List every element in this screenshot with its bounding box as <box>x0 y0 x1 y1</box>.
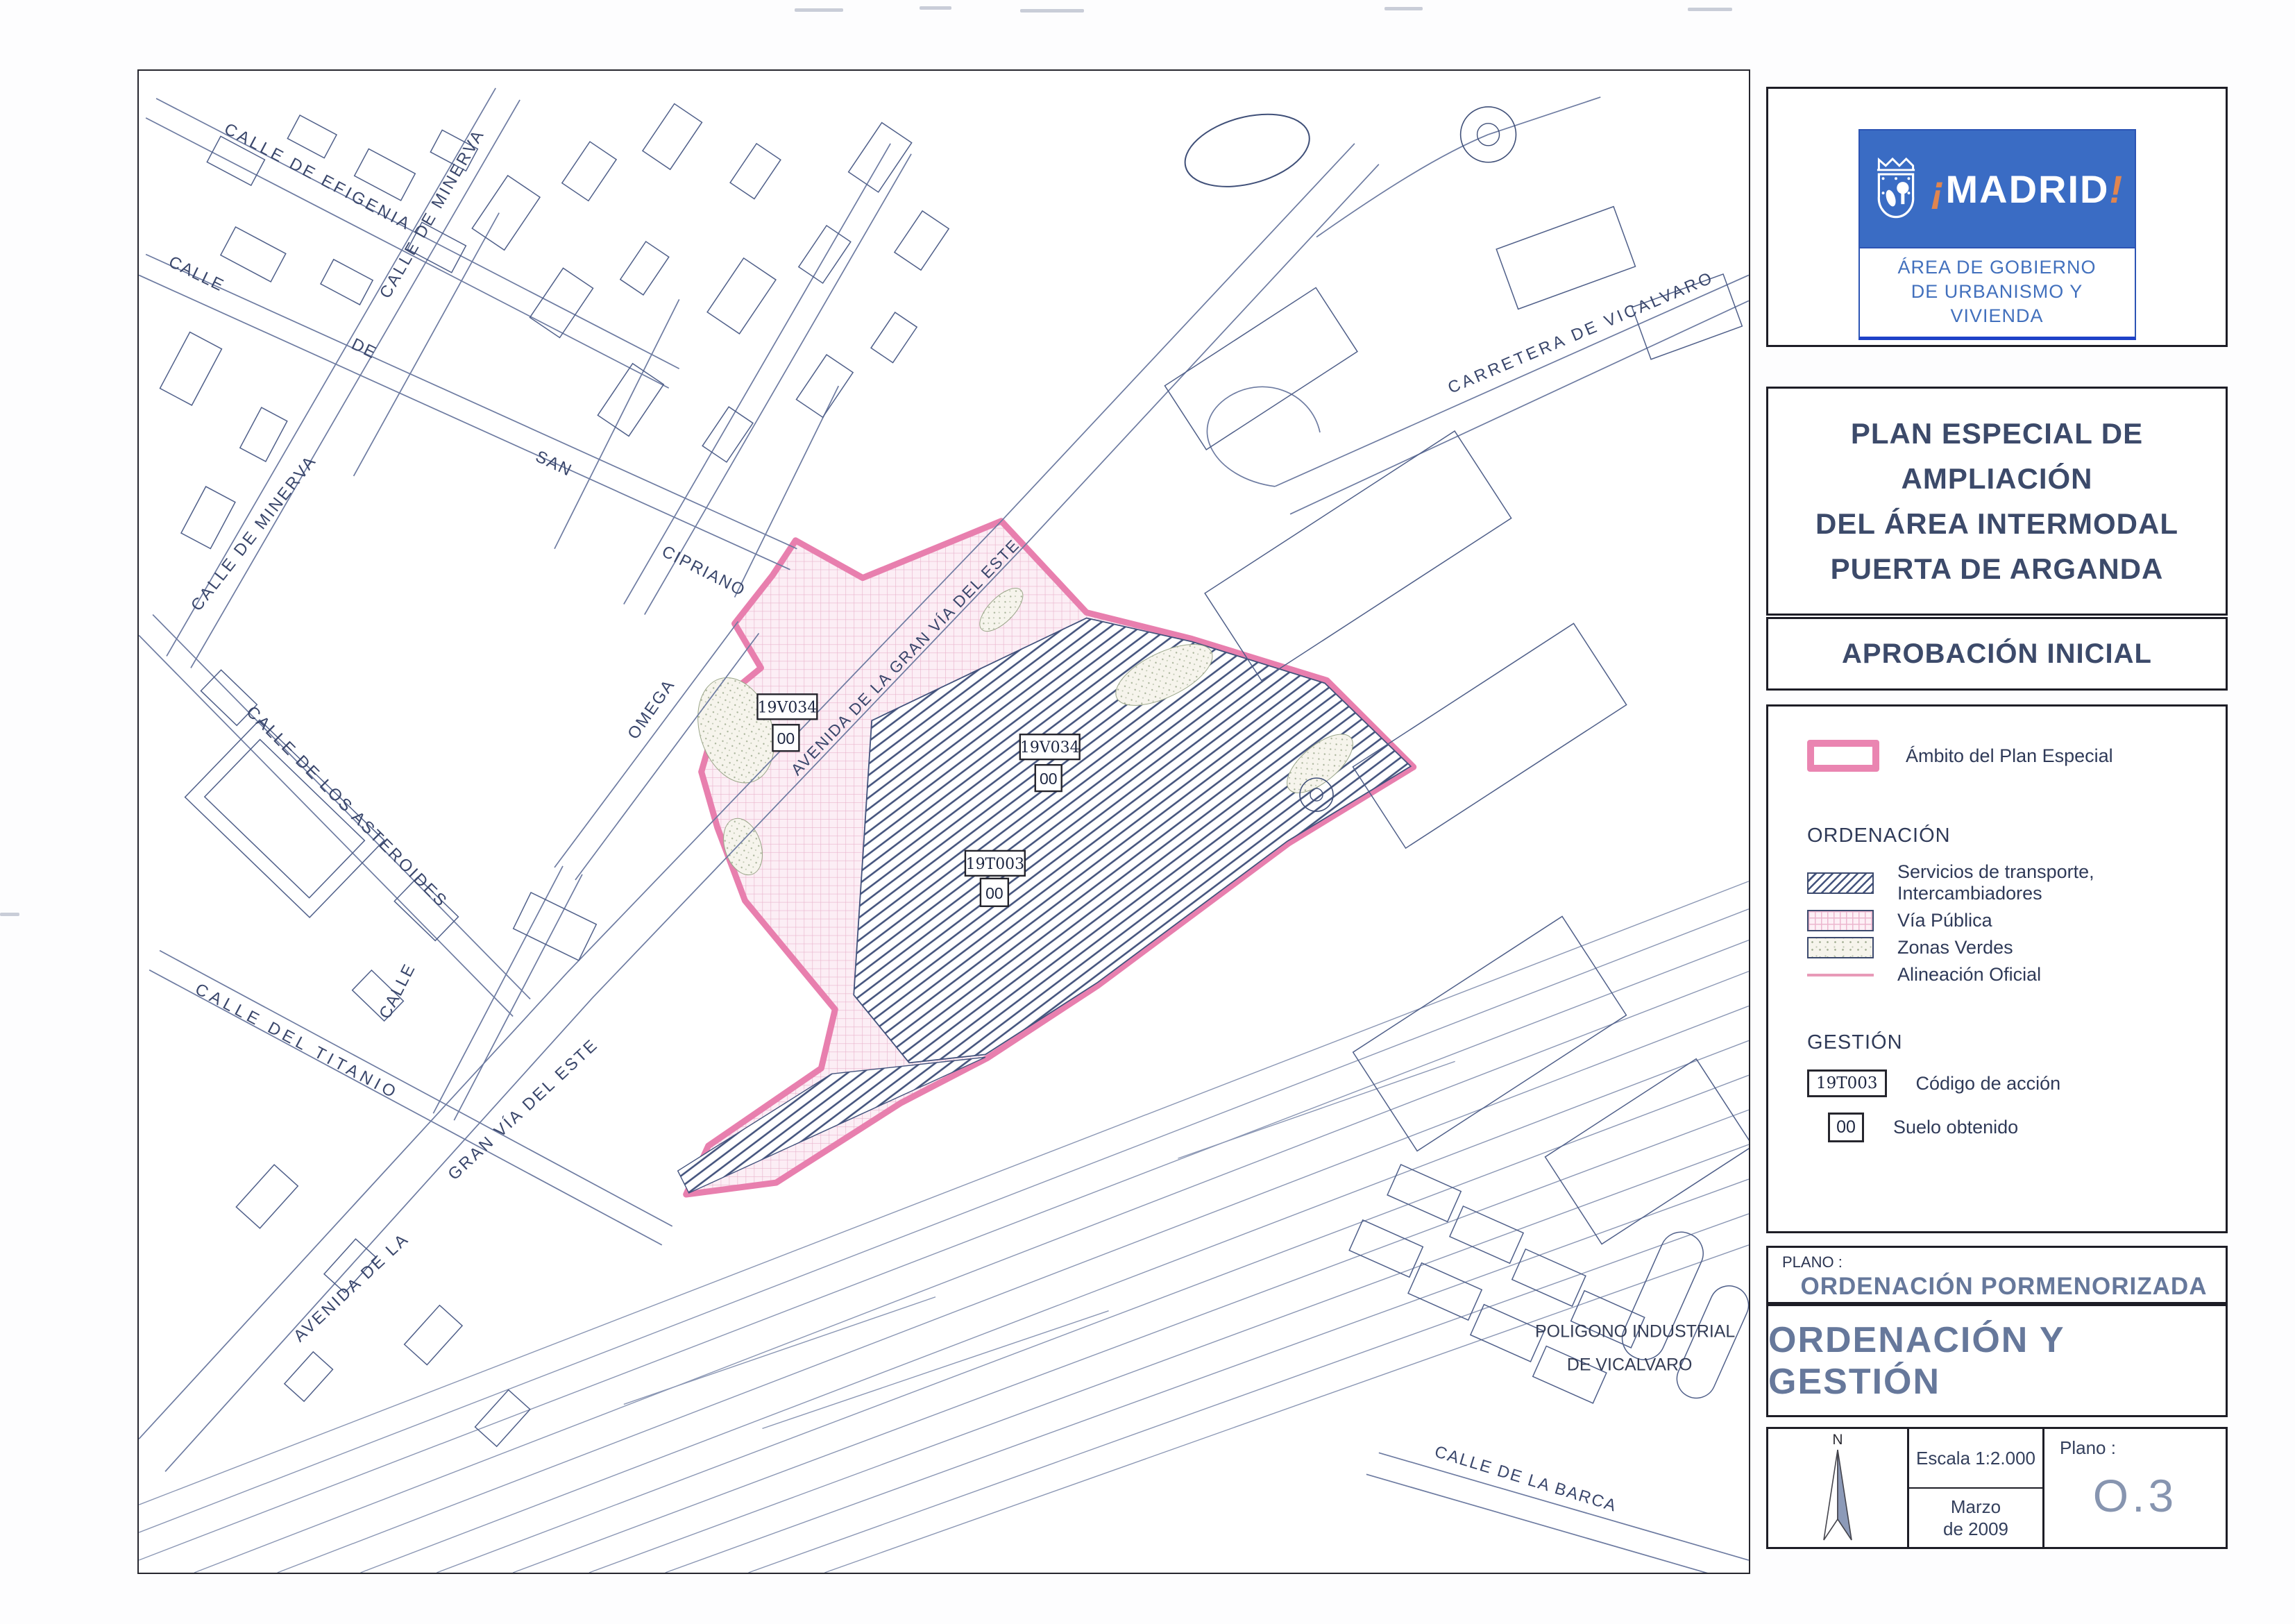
street-label-san: SAN <box>532 447 575 480</box>
street-label-asteroides: CALLE DE LOS ASTEROIDES <box>242 702 451 911</box>
suelo-obtenido-text: 00 <box>1040 770 1058 788</box>
dept-line-2: DE URBANISMO Y VIVIENDA <box>1863 280 2132 328</box>
servicios-label: Servicios de transporte, Intercambiadore… <box>1897 861 2208 904</box>
phase-box: APROBACIÓN INICIAL <box>1766 617 2228 691</box>
wordmark-close-bang: ! <box>2109 167 2124 211</box>
street-label-avenida-2: GRAN VÍA DEL ESTE <box>444 1035 602 1184</box>
street-label-omega: OMEGA <box>624 676 679 743</box>
madrid-wordmark: ¡MADRID! <box>1931 167 2124 212</box>
codigo-accion-label: Código de acción <box>1916 1073 2061 1094</box>
title-block-panel: ¡MADRID! ÁREA DE GOBIERNO DE URBANISMO Y… <box>1766 0 2228 1624</box>
suelo-obtenido-label: Suelo obtenido <box>1893 1117 2018 1138</box>
zonas-verdes-label: Zonas Verdes <box>1897 937 2013 958</box>
legend-box: Ámbito del Plan Especial ORDENACIÓN Serv… <box>1766 704 2228 1233</box>
legend-row-alineacion: Alineación Oficial <box>1807 964 2208 986</box>
zonas-verdes-swatch-icon <box>1807 937 1874 958</box>
map-frame: 19V034 00 19V034 00 19T003 00 <box>137 69 1750 1574</box>
suelo-obtenido-box: 00 <box>1828 1113 1864 1142</box>
madrid-logo: ¡MADRID! ÁREA DE GOBIERNO DE URBANISMO Y… <box>1858 129 2136 340</box>
street-label-calle: CALLE <box>166 253 228 296</box>
pond-outline <box>1177 102 1317 199</box>
north-arrow-cell: N <box>1768 1429 1909 1547</box>
north-label: N <box>1832 1432 1843 1448</box>
legend-row-ambito: Ámbito del Plan Especial <box>1807 740 2208 772</box>
plano-number-cell: Plano : O.3 <box>2044 1429 2226 1547</box>
agency-logo-box: ¡MADRID! ÁREA DE GOBIERNO DE URBANISMO Y… <box>1766 87 2228 347</box>
ambito-swatch-icon <box>1807 740 1879 772</box>
legend-row-servicios: Servicios de transporte, Intercambiadore… <box>1807 861 2208 904</box>
via-publica-swatch-icon <box>1807 910 1874 931</box>
plano-subtitle-box: PLANO : ORDENACIÓN PORMENORIZADA <box>1766 1246 2228 1304</box>
scan-artifact <box>1020 9 1084 12</box>
map-canvas: 19V034 00 19V034 00 19T003 00 <box>139 71 1749 1573</box>
street-label-minerva-lower: CALLE DE MINERVA <box>187 452 321 615</box>
scan-artifact <box>1688 8 1732 11</box>
plano-number: O.3 <box>2044 1469 2226 1522</box>
action-code-text: 19V034 <box>1020 739 1080 756</box>
scan-artifact <box>1384 7 1423 10</box>
servicios-swatch-icon <box>1807 872 1874 894</box>
alineacion-label: Alineación Oficial <box>1897 964 2041 986</box>
plano-subtitle: ORDENACIÓN PORMENORIZADA <box>1782 1273 2226 1301</box>
plano-number-label: Plano : <box>2060 1437 2116 1459</box>
scan-artifact <box>795 8 843 12</box>
ordenacion-heading: ORDENACIÓN <box>1807 824 2208 847</box>
action-code-text: 19T003 <box>966 856 1024 873</box>
suelo-obtenido-text: 00 <box>985 884 1003 902</box>
street-label-cipriano: CIPRIANO <box>659 542 749 600</box>
wordmark-name: MADRID <box>1946 167 2110 211</box>
legend-row-via-publica: Vía Pública <box>1807 910 2208 931</box>
zona-servicios-tail <box>678 1057 985 1193</box>
plano-main-title-box: ORDENACIÓN Y GESTIÓN <box>1766 1304 2228 1417</box>
scale-text: Escala 1:2.000 <box>1909 1429 2042 1489</box>
title-line-3: PUERTA DE ARGANDA <box>1768 546 2226 591</box>
title-line-2: DEL ÁREA INTERMODAL <box>1768 501 2226 546</box>
madrid-logo-banner: ¡MADRID! <box>1858 129 2136 248</box>
suelo-obtenido-text: 00 <box>777 729 795 747</box>
title-line-1: PLAN ESPECIAL DE AMPLIACIÓN <box>1768 411 2226 501</box>
legend-row-codigo: 19T003 Código de acción <box>1807 1069 2208 1097</box>
legend-row-zonas-verdes: Zonas Verdes <box>1807 937 2208 958</box>
gestion-heading: GESTIÓN <box>1807 1031 2208 1054</box>
legend-row-suelo: 00 Suelo obtenido <box>1807 1113 2208 1142</box>
plan-sheet: 19V034 00 19V034 00 19T003 00 <box>0 0 2295 1624</box>
date-line-2: de 2009 <box>1943 1518 2008 1541</box>
plan-area <box>678 521 1414 1194</box>
scale-date-cell: Escala 1:2.000 Marzo de 2009 <box>1909 1429 2044 1547</box>
madrid-logo-department: ÁREA DE GOBIERNO DE URBANISMO Y VIVIENDA <box>1858 248 2136 340</box>
dept-line-1: ÁREA DE GOBIERNO <box>1863 255 2132 280</box>
action-code-text: 19V034 <box>758 699 818 716</box>
codigo-accion-box: 19T003 <box>1807 1069 1887 1097</box>
scan-artifact <box>920 6 951 10</box>
ambito-label: Ámbito del Plan Especial <box>1906 745 2113 767</box>
date-text: Marzo de 2009 <box>1909 1489 2042 1547</box>
via-publica-label: Vía Pública <box>1897 910 1992 931</box>
street-label-avenida-1: AVENIDA DE LA <box>290 1229 413 1346</box>
scan-artifact <box>0 913 19 916</box>
date-line-1: Marzo <box>1951 1496 2001 1519</box>
place-label-poligono-1: POLIGONO INDUSTRIAL <box>1535 1322 1735 1342</box>
street-label-titanio: CALLE DEL TITANIO <box>192 980 403 1103</box>
place-label-poligono-2: DE VICALVARO <box>1567 1355 1693 1375</box>
wordmark-open-bang: ¡ <box>1931 167 1946 211</box>
alineacion-swatch-icon <box>1807 974 1874 976</box>
street-label-carretera: CARRETERA DE VICALVARO <box>1445 268 1717 398</box>
document-title-box: PLAN ESPECIAL DE AMPLIACIÓN DEL ÁREA INT… <box>1766 387 2228 616</box>
phase-text: APROBACIÓN INICIAL <box>1842 638 2152 670</box>
street-label-calle-vertical: CALLE <box>375 961 419 1022</box>
madrid-crest-icon <box>1870 155 1922 222</box>
street-label-barca: CALLE DE LA BARCA <box>1432 1442 1619 1516</box>
plano-main-title: ORDENACIÓN Y GESTIÓN <box>1768 1319 2226 1403</box>
plano-label: PLANO : <box>1782 1253 2226 1271</box>
info-box: N Escala 1:2.000 Marzo de 2009 Plano : O… <box>1766 1427 2228 1549</box>
street-label-efigenia: CALLE DE EFIGENIA <box>221 119 415 235</box>
north-arrow-icon: N <box>1812 1432 1863 1544</box>
